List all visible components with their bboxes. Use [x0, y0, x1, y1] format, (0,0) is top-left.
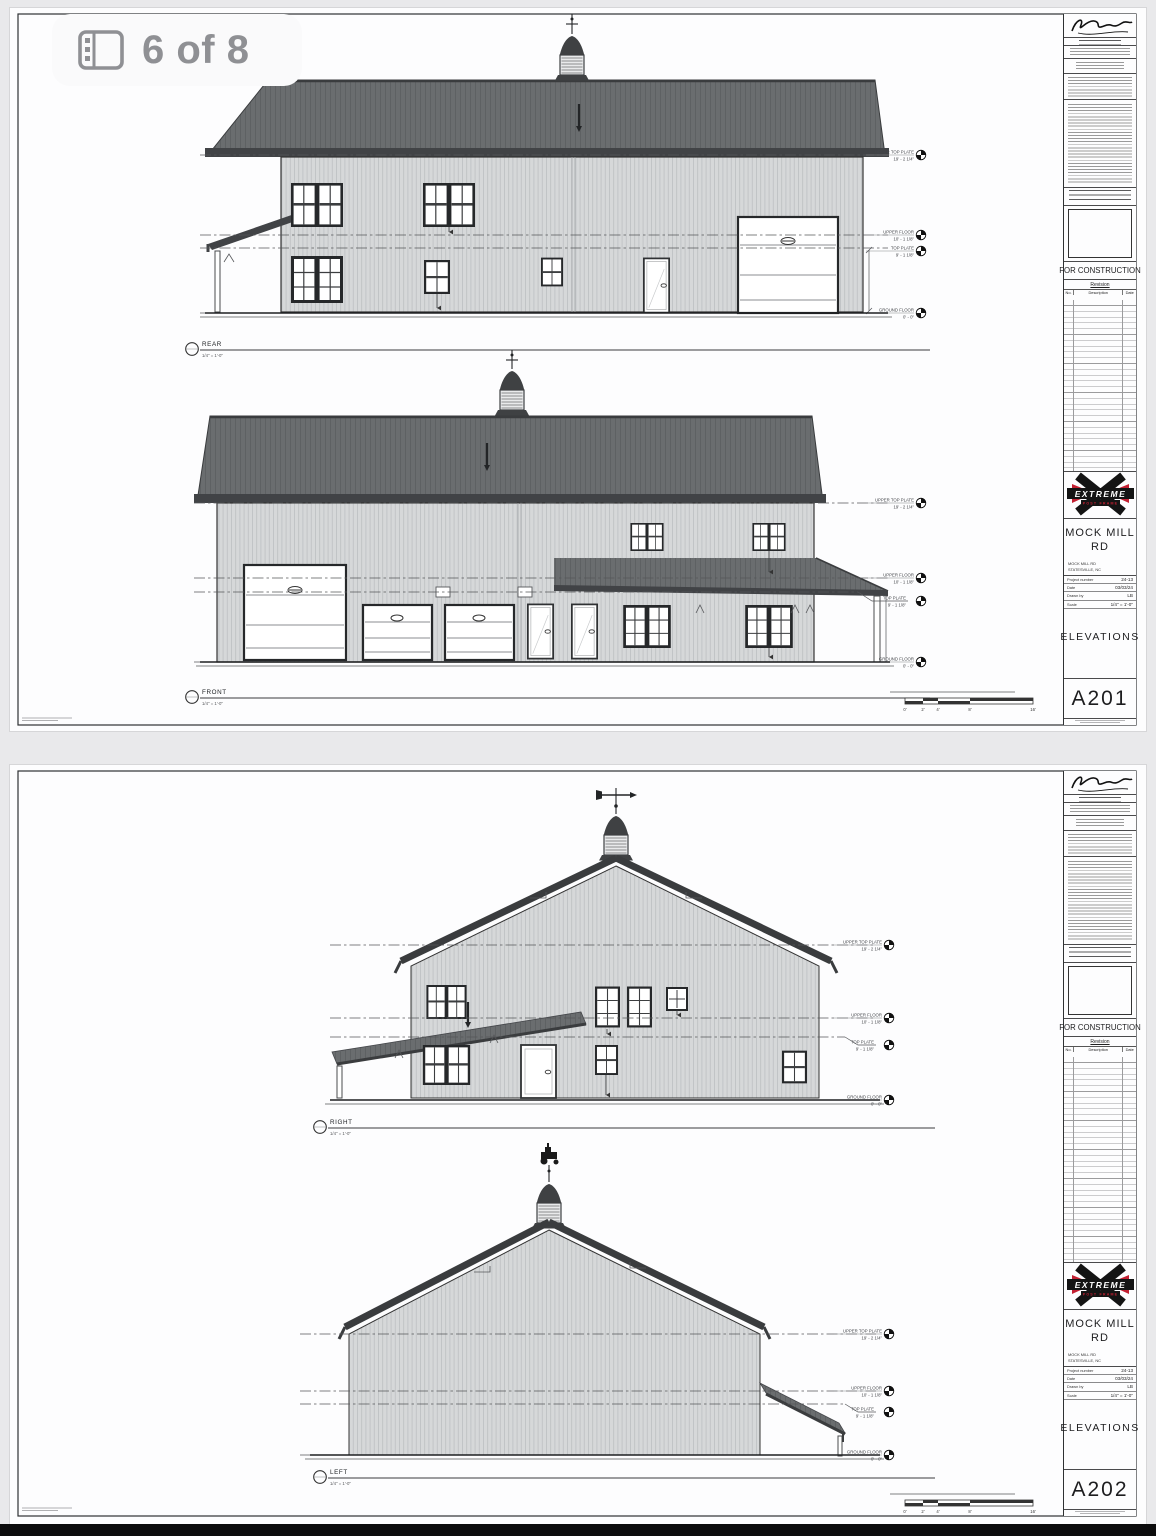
- window: [753, 524, 784, 550]
- graphic-scale-bar: 0' 2' 4' 8' 16': [890, 1494, 1036, 1514]
- svg-text:9' - 1 1/8": 9' - 1 1/8": [856, 1047, 875, 1052]
- window: [292, 184, 341, 225]
- roof: [194, 416, 826, 503]
- svg-text:2': 2': [921, 1509, 924, 1514]
- svg-text:UPPER TOP PLATE: UPPER TOP PLATE: [843, 940, 882, 945]
- svg-text:RIGHT: RIGHT: [330, 1119, 353, 1126]
- contact-note: [1064, 59, 1136, 74]
- extreme-post-frame-logo: EXTREME POST FRAME: [1064, 472, 1136, 519]
- for-construction-label: FOR CONSTRUCTION: [1064, 262, 1136, 280]
- svg-text:0': 0': [903, 707, 906, 712]
- contact-note: [1064, 816, 1136, 831]
- dimension-line: [866, 247, 872, 314]
- view-title-right: RIGHT 1/4" = 1'-0": [314, 1119, 935, 1136]
- extreme-post-frame-logo: EXTREME POST FRAME: [1064, 1263, 1136, 1310]
- revision-header: Revision No. Description Date: [1064, 1037, 1136, 1057]
- svg-text:TOP PLATE: TOP PLATE: [883, 596, 906, 601]
- svg-text:9' - 1 1/8": 9' - 1 1/8": [896, 253, 915, 258]
- company-line: [1064, 38, 1136, 46]
- svg-text:1/4" = 1'-0": 1/4" = 1'-0": [330, 1131, 351, 1136]
- porch-post: [337, 1066, 342, 1098]
- svg-text:UPPER TOP PLATE: UPPER TOP PLATE: [875, 498, 914, 503]
- cupola: [599, 816, 633, 861]
- left-elevation: UPPER TOP PLATE 19' - 2 1/4" UPPER FLOOR…: [300, 1143, 935, 1486]
- project-name-block: MOCK MILLRD MOCK MILL RDSTATESVILLE, NC: [1064, 1310, 1136, 1367]
- general-notes: [1064, 100, 1136, 188]
- garage-door: [363, 605, 432, 660]
- svg-text:0': 0': [903, 1509, 906, 1514]
- door: [572, 604, 597, 658]
- svg-text:16': 16': [1030, 707, 1036, 712]
- revision-table: [1064, 1057, 1136, 1263]
- svg-text:UPPER TOP PLATE: UPPER TOP PLATE: [843, 1329, 882, 1334]
- svg-text:10' - 1 1/8": 10' - 1 1/8": [893, 237, 914, 242]
- svg-text:UPPER FLOOR: UPPER FLOOR: [851, 1386, 882, 1391]
- svg-text:10' - 1 1/8": 10' - 1 1/8": [861, 1393, 882, 1398]
- svg-text:UPPER FLOOR: UPPER FLOOR: [883, 230, 914, 235]
- svg-text:POST FRAME: POST FRAME: [1083, 502, 1119, 506]
- svg-text:TOP PLATE: TOP PLATE: [891, 246, 914, 251]
- svg-text:8': 8': [968, 707, 971, 712]
- svg-text:0' - 0": 0' - 0": [903, 315, 914, 320]
- view-title-front: FRONT 1/4" = 1'-0": [186, 689, 930, 706]
- cupola: [495, 350, 529, 416]
- window: [427, 986, 465, 1018]
- roof: [205, 80, 889, 157]
- door: [528, 604, 553, 658]
- svg-text:GROUND FLOOR: GROUND FLOOR: [847, 1450, 882, 1455]
- porch-roof: [554, 558, 888, 596]
- door: [644, 258, 669, 312]
- window: [628, 988, 651, 1027]
- svg-text:19' - 2 1/4": 19' - 2 1/4": [893, 505, 914, 510]
- view-title-rear: REAR 1/4" = 1'-0": [186, 341, 930, 358]
- gable-wall: [349, 1230, 760, 1455]
- svg-text:LEFT: LEFT: [330, 1469, 348, 1476]
- svg-text:4': 4': [936, 707, 939, 712]
- sheet-number: A202: [1064, 1470, 1136, 1510]
- designer-signature: [1064, 14, 1136, 38]
- photo-counter-label: 6 of 8: [142, 28, 249, 73]
- general-notes: [1064, 857, 1136, 945]
- svg-text:9' - 1 1/8": 9' - 1 1/8": [888, 603, 907, 608]
- svg-text:UPPER TOP PLATE: UPPER TOP PLATE: [875, 150, 914, 155]
- sheet-a201: UPPER TOP PLATE 19' - 2 1/4" UPPER FLOOR…: [10, 8, 1146, 731]
- photo-viewer: 6 of 8: [0, 0, 1156, 1536]
- window: [424, 184, 473, 225]
- lean-to: [760, 1383, 845, 1456]
- svg-text:10' - 1 1/8": 10' - 1 1/8": [861, 1020, 882, 1025]
- svg-text:TOP PLATE: TOP PLATE: [851, 1040, 874, 1045]
- gallery-icon: [78, 30, 124, 70]
- svg-text:1/4" = 1'-0": 1/4" = 1'-0": [202, 353, 223, 358]
- window: [747, 606, 792, 646]
- bold-note: [1064, 945, 1136, 963]
- svg-text:UPPER FLOOR: UPPER FLOOR: [883, 573, 914, 578]
- svg-text:FRONT: FRONT: [202, 689, 227, 696]
- svg-text:19' - 2 1/4": 19' - 2 1/4": [861, 947, 882, 952]
- window: [596, 1046, 617, 1074]
- sheet-a201-drawing: UPPER TOP PLATE 19' - 2 1/4" UPPER FLOOR…: [10, 8, 1146, 731]
- sheet-a202: UPPER TOP PLATE 19' - 2 1/4" UPPER FLOOR…: [10, 765, 1146, 1524]
- svg-text:POST FRAME: POST FRAME: [1083, 1293, 1119, 1297]
- window: [424, 1046, 469, 1084]
- for-construction-label: FOR CONSTRUCTION: [1064, 1019, 1136, 1037]
- stamp-area: [1064, 206, 1136, 262]
- svg-text:EXTREME: EXTREME: [1075, 489, 1127, 499]
- cupola: [555, 14, 589, 81]
- sheet-title: ELEVATIONS: [1064, 1400, 1136, 1470]
- window: [783, 1052, 806, 1083]
- svg-text:REAR: REAR: [202, 341, 222, 348]
- bold-note: [1064, 188, 1136, 206]
- svg-text:TOP PLATE: TOP PLATE: [851, 1407, 874, 1412]
- svg-text:EXTREME: EXTREME: [1075, 1280, 1127, 1290]
- window: [542, 259, 562, 286]
- window: [631, 524, 662, 550]
- garage-door: [445, 605, 514, 660]
- garage-door: [738, 217, 838, 313]
- plot-stamp: [22, 1508, 72, 1511]
- door: [521, 1045, 556, 1098]
- svg-text:1/4" = 1'-0": 1/4" = 1'-0": [330, 1481, 351, 1486]
- company-address: [1064, 46, 1136, 59]
- front-elevation: UPPER TOP PLATE 19' - 2 1/4" UPPER FLOOR…: [186, 350, 930, 706]
- print-info: [1064, 1510, 1136, 1516]
- tractor-weathervane: [541, 1143, 559, 1182]
- window: [625, 606, 670, 646]
- graphic-scale-bar: 0' 2' 4' 8' 16': [890, 692, 1036, 712]
- svg-text:19' - 2 1/4": 19' - 2 1/4": [893, 157, 914, 162]
- svg-text:9' - 1 1/8": 9' - 1 1/8": [856, 1414, 875, 1419]
- svg-text:10' - 1 1/8": 10' - 1 1/8": [893, 580, 914, 585]
- window: [596, 988, 619, 1027]
- notes-paragraph: [1064, 831, 1136, 857]
- plot-stamp: [22, 718, 72, 721]
- weathervane: [596, 788, 637, 814]
- company-line: [1064, 795, 1136, 803]
- svg-text:19' - 2 1/4": 19' - 2 1/4": [861, 1336, 882, 1341]
- svg-text:2': 2': [921, 707, 924, 712]
- svg-text:GROUND FLOOR: GROUND FLOOR: [847, 1095, 882, 1100]
- project-fields: Project number24-13 Date03/03/24 Drawn b…: [1064, 576, 1136, 609]
- svg-text:UPPER FLOOR: UPPER FLOOR: [851, 1013, 882, 1018]
- garage-door: [244, 565, 346, 660]
- stamp-area: [1064, 963, 1136, 1019]
- svg-text:GROUND FLOOR: GROUND FLOOR: [879, 657, 914, 662]
- svg-text:1/4" = 1'-0": 1/4" = 1'-0": [202, 701, 223, 706]
- sheet-number: A201: [1064, 679, 1136, 719]
- company-address: [1064, 803, 1136, 816]
- window: [667, 988, 687, 1010]
- sheet-a202-drawing: UPPER TOP PLATE 19' - 2 1/4" UPPER FLOOR…: [10, 765, 1146, 1524]
- view-title-left: LEFT 1/4" = 1'-0": [314, 1469, 935, 1486]
- window: [293, 258, 342, 302]
- designer-signature: [1064, 771, 1136, 795]
- svg-text:4': 4': [936, 1509, 939, 1514]
- window: [425, 261, 449, 293]
- sheet-title: ELEVATIONS: [1064, 609, 1136, 679]
- porch-post: [874, 596, 880, 662]
- photo-counter-badge[interactable]: 6 of 8: [52, 14, 302, 86]
- svg-text:0' - 0": 0' - 0": [903, 664, 914, 669]
- project-fields: Project number24-13 Date03/03/24 Drawn b…: [1064, 1367, 1136, 1400]
- cupola: [532, 1184, 566, 1229]
- notes-paragraph: [1064, 74, 1136, 100]
- print-info: [1064, 719, 1136, 725]
- titleblock-a202: FOR CONSTRUCTION Revision No. Descriptio…: [1063, 771, 1136, 1516]
- project-name-block: MOCK MILLRD MOCK MILL RDSTATESVILLE, NC: [1064, 519, 1136, 576]
- viewer-bottom-bar: [0, 1524, 1156, 1536]
- titleblock-a201: FOR CONSTRUCTION Revision No. Descriptio…: [1063, 14, 1136, 725]
- revision-header: Revision No. Description Date: [1064, 280, 1136, 300]
- svg-text:GROUND FLOOR: GROUND FLOOR: [879, 308, 914, 313]
- right-elevation: UPPER TOP PLATE 19' - 2 1/4" UPPER FLOOR…: [314, 788, 935, 1136]
- svg-text:16': 16': [1030, 1509, 1036, 1514]
- svg-text:8': 8': [968, 1509, 971, 1514]
- revision-table: [1064, 300, 1136, 472]
